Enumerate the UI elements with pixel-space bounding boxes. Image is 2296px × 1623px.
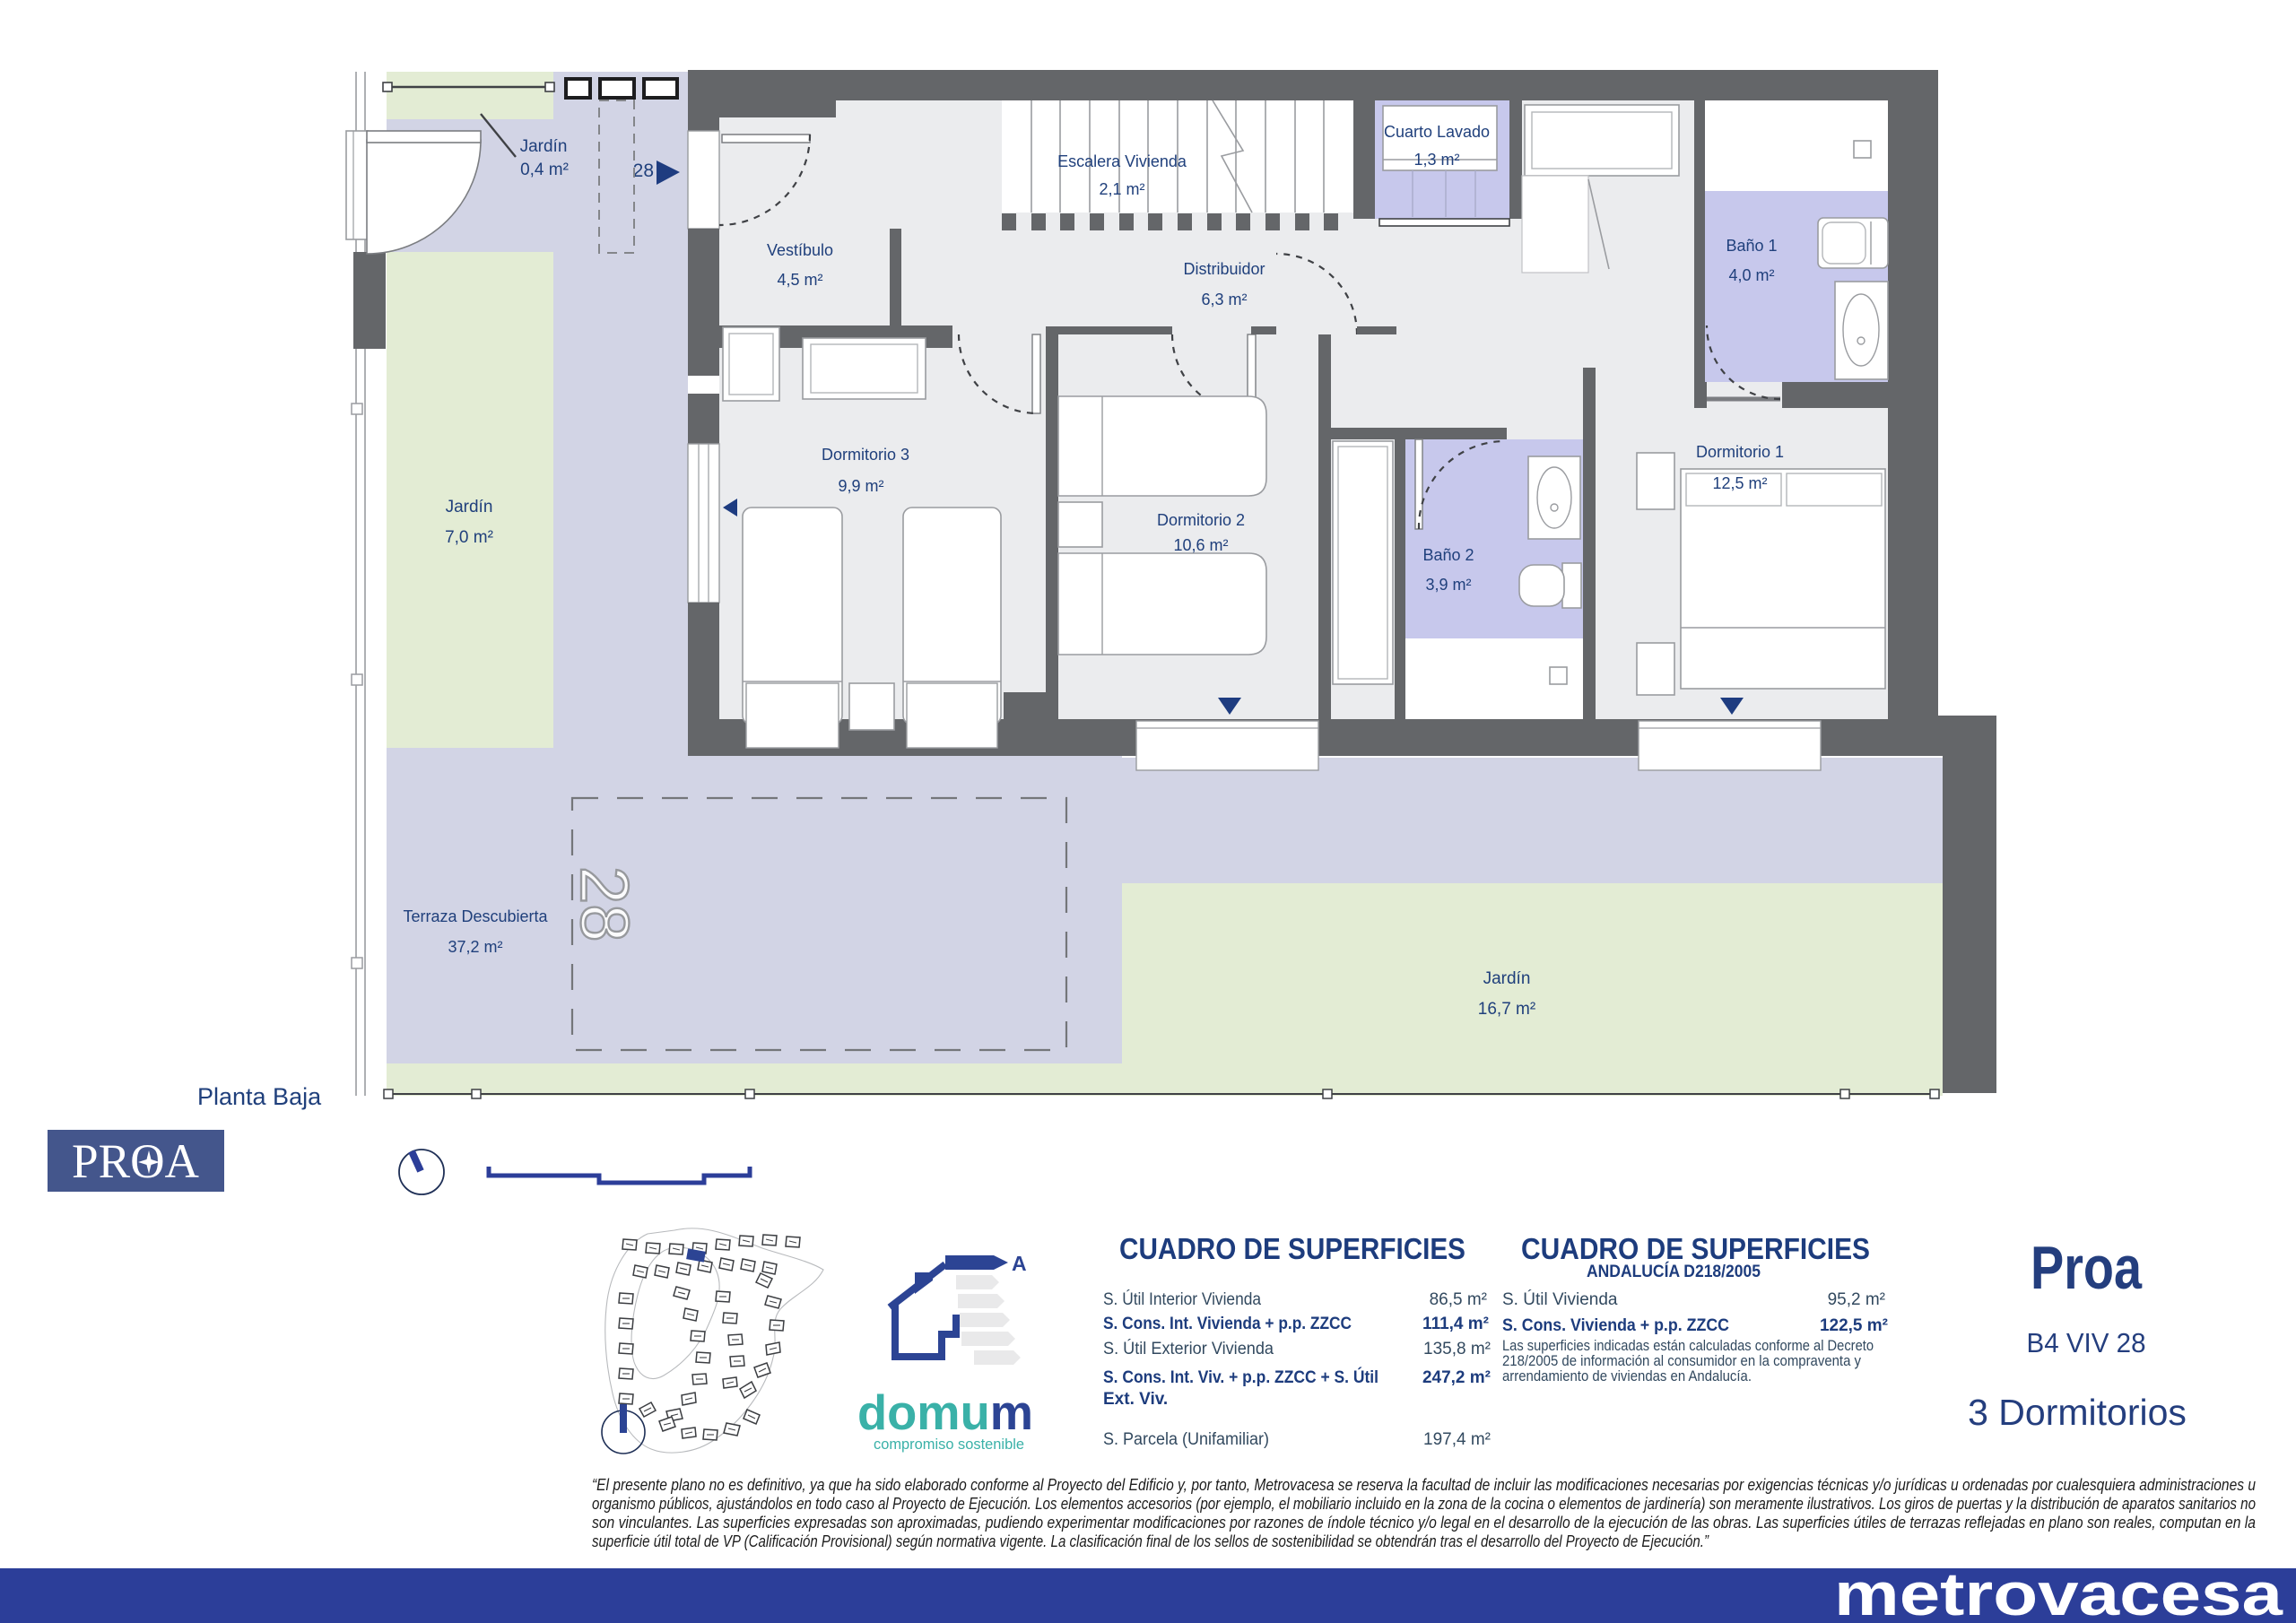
svg-text:ANDALUCÍA D218/2005: ANDALUCÍA D218/2005: [1587, 1262, 1761, 1281]
svg-text:1,3 m²: 1,3 m²: [1413, 151, 1459, 169]
svg-text:16,7 m²: 16,7 m²: [1478, 1000, 1535, 1019]
svg-text:Dormitorio 2: Dormitorio 2: [1157, 511, 1245, 529]
svg-text:arrendamiento de viviendas en: arrendamiento de viviendas en Andalucía.: [1502, 1367, 1752, 1384]
svg-text:“El presente plano no es defin: “El presente plano no es definitivo, ya …: [592, 1476, 2256, 1494]
svg-text:S. Cons. Int. Vivienda + p.p.: S. Cons. Int. Vivienda + p.p. ZZCC: [1103, 1315, 1352, 1333]
svg-text:compromiso sostenible: compromiso sostenible: [874, 1436, 1024, 1453]
svg-text:son vinculantes. Las superfici: son vinculantes. Las superficies expresa…: [592, 1514, 2256, 1532]
svg-text:metrovacesa: metrovacesa: [1834, 1560, 2283, 1623]
svg-text:6,3 m²: 6,3 m²: [1201, 291, 1247, 308]
svg-text:2,1 m²: 2,1 m²: [1099, 180, 1144, 198]
svg-text:Dormitorio 1: Dormitorio 1: [1696, 443, 1784, 461]
svg-text:247,2 m²: 247,2 m²: [1422, 1368, 1491, 1387]
svg-text:S. Cons. Int. Viv. + p.p. ZZCC: S. Cons. Int. Viv. + p.p. ZZCC + S. Útil: [1103, 1367, 1378, 1387]
svg-text:PROA: PROA: [72, 1134, 199, 1188]
svg-text:B4 VIV 28: B4 VIV 28: [2027, 1327, 2146, 1358]
svg-text:28: 28: [633, 161, 654, 181]
svg-text:S. Útil Interior Vivienda: S. Útil Interior Vivienda: [1103, 1289, 1261, 1309]
svg-text:Distribuidor: Distribuidor: [1183, 260, 1265, 278]
svg-text:3,9 m²: 3,9 m²: [1425, 576, 1471, 594]
svg-text:3 Dormitorios: 3 Dormitorios: [1968, 1392, 2187, 1433]
svg-text:S. Cons. Vivienda + p.p. ZZCC: S. Cons. Vivienda + p.p. ZZCC: [1502, 1316, 1729, 1335]
svg-text:Proa: Proa: [2031, 1234, 2143, 1302]
svg-text:Dormitorio 3: Dormitorio 3: [822, 446, 909, 464]
svg-text:S. Útil Vivienda: S. Útil Vivienda: [1502, 1289, 1618, 1309]
svg-text:122,5 m²: 122,5 m²: [1820, 1316, 1888, 1335]
svg-text:S. Parcela (Unifamiliar): S. Parcela (Unifamiliar): [1103, 1430, 1269, 1449]
svg-text:28: 28: [566, 866, 642, 942]
svg-text:Jardín: Jardín: [1483, 969, 1531, 988]
svg-text:Ext. Viv.: Ext. Viv.: [1103, 1390, 1168, 1409]
svg-text:CUADRO DE SUPERFICIES: CUADRO DE SUPERFICIES: [1521, 1232, 1870, 1265]
svg-text:superficie útil total de VP (C: superficie útil total de VP (Calificació…: [592, 1532, 1709, 1550]
svg-text:197,4 m²: 197,4 m²: [1423, 1430, 1491, 1449]
svg-text:135,8 m²: 135,8 m²: [1423, 1340, 1491, 1358]
svg-text:Terraza Descubierta: Terraza Descubierta: [403, 907, 548, 925]
svg-text:86,5 m²: 86,5 m²: [1430, 1290, 1487, 1309]
svg-text:12,5 m²: 12,5 m²: [1712, 474, 1767, 492]
svg-text:7,0 m²: 7,0 m²: [445, 528, 493, 547]
svg-text:Planta Baja: Planta Baja: [197, 1083, 322, 1110]
svg-text:111,4 m²: 111,4 m²: [1422, 1315, 1489, 1333]
svg-text:4,5 m²: 4,5 m²: [777, 271, 822, 289]
svg-text:10,6 m²: 10,6 m²: [1173, 536, 1228, 554]
svg-text:95,2 m²: 95,2 m²: [1828, 1290, 1885, 1309]
svg-text:domum: domum: [857, 1384, 1033, 1440]
svg-text:37,2 m²: 37,2 m²: [448, 938, 502, 956]
svg-text:Jardín: Jardín: [446, 498, 493, 516]
svg-text:Baño 1: Baño 1: [1726, 237, 1777, 255]
svg-text:CUADRO DE SUPERFICIES: CUADRO DE SUPERFICIES: [1119, 1232, 1465, 1265]
svg-text:S. Útil Exterior Vivienda: S. Útil Exterior Vivienda: [1103, 1339, 1274, 1358]
svg-text:A: A: [1012, 1252, 1027, 1275]
svg-text:Baño 2: Baño 2: [1422, 546, 1474, 564]
svg-text:Cuarto Lavado: Cuarto Lavado: [1384, 123, 1490, 141]
svg-text:9,9 m²: 9,9 m²: [838, 477, 883, 495]
svg-text:0,4 m²: 0,4 m²: [520, 161, 569, 179]
svg-text:organismo públicos, ajustándol: organismo públicos, ajustándolos en todo…: [592, 1495, 2256, 1513]
svg-text:Vestíbulo: Vestíbulo: [767, 241, 833, 259]
svg-text:4,0 m²: 4,0 m²: [1728, 266, 1774, 284]
svg-text:Escalera Vivienda: Escalera Vivienda: [1057, 152, 1187, 170]
svg-text:Jardín: Jardín: [520, 137, 568, 156]
